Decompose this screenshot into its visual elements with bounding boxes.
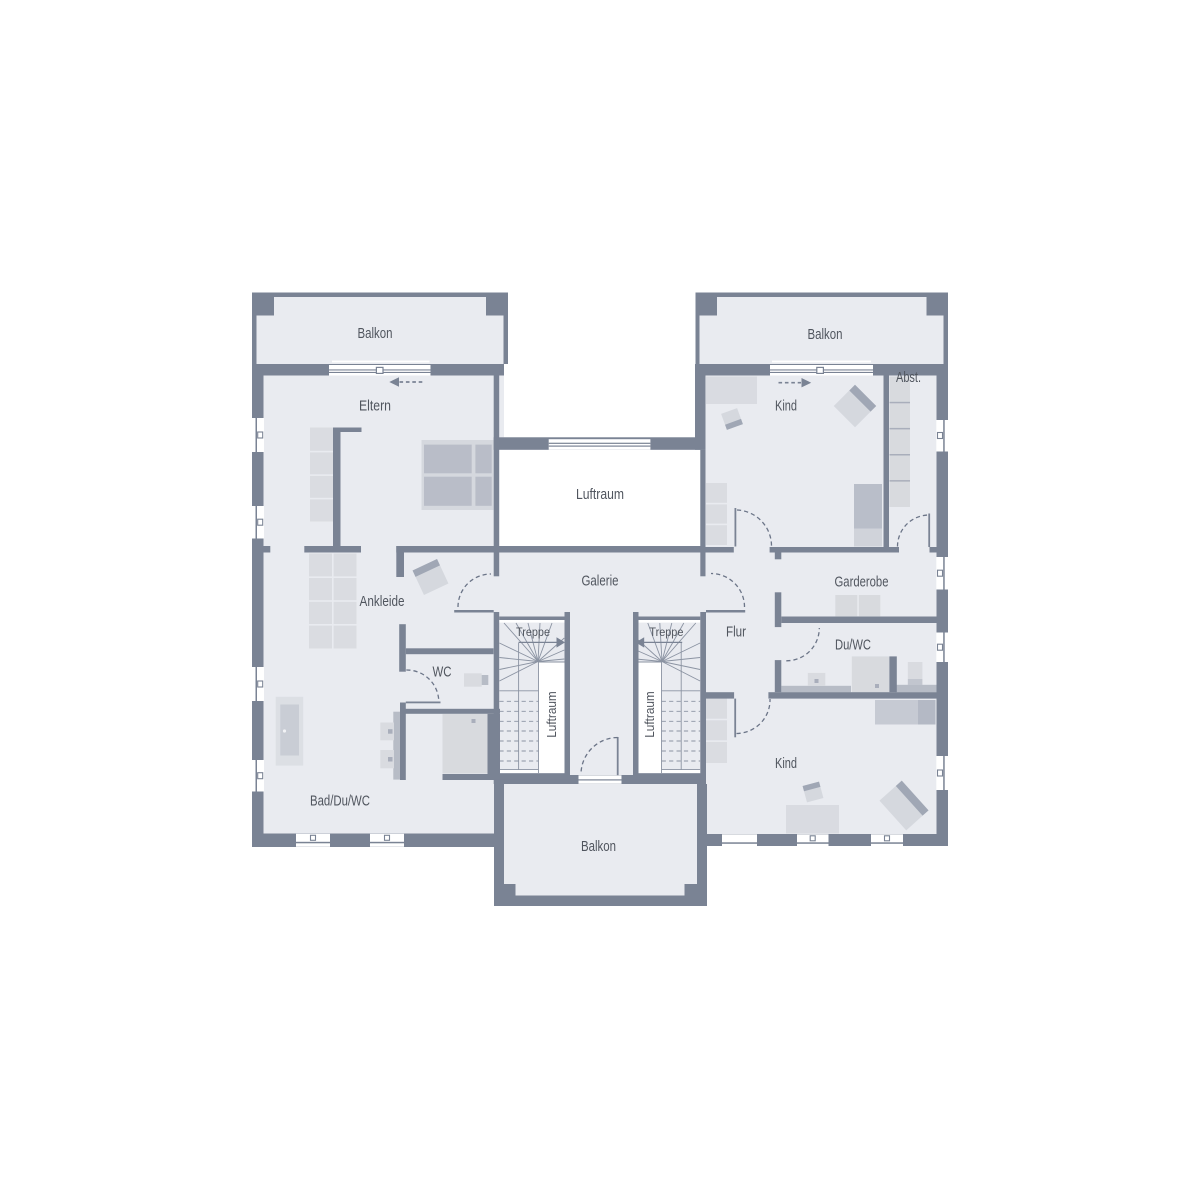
svg-text:Kind: Kind bbox=[775, 755, 797, 772]
svg-text:Treppe: Treppe bbox=[516, 625, 550, 639]
svg-text:Luftraum: Luftraum bbox=[576, 486, 624, 503]
svg-text:Flur: Flur bbox=[726, 624, 746, 641]
svg-text:Luftraum: Luftraum bbox=[544, 691, 559, 738]
svg-text:Garderobe: Garderobe bbox=[835, 573, 889, 590]
svg-text:Galerie: Galerie bbox=[582, 573, 619, 590]
svg-text:WC: WC bbox=[433, 664, 452, 681]
svg-text:Balkon: Balkon bbox=[581, 838, 616, 855]
svg-text:Du/WC: Du/WC bbox=[835, 637, 871, 654]
svg-text:Bad/Du/WC: Bad/Du/WC bbox=[310, 793, 370, 810]
svg-text:Eltern: Eltern bbox=[359, 397, 391, 414]
svg-text:Kind: Kind bbox=[775, 398, 797, 415]
svg-text:Balkon: Balkon bbox=[808, 326, 843, 343]
svg-text:Luftraum: Luftraum bbox=[642, 691, 657, 738]
svg-text:Ankleide: Ankleide bbox=[360, 593, 405, 610]
svg-text:Balkon: Balkon bbox=[358, 325, 393, 342]
svg-text:Abst.: Abst. bbox=[896, 369, 921, 386]
svg-text:Treppe: Treppe bbox=[649, 625, 683, 639]
